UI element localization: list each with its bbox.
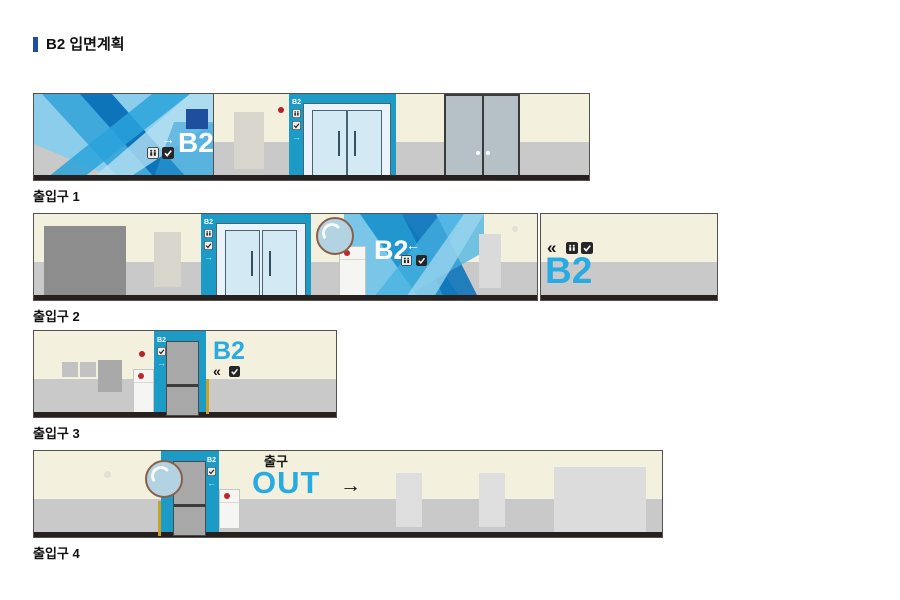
cabinet-divider <box>220 502 239 503</box>
transfer-check-icon <box>207 467 216 476</box>
kick-plate <box>158 501 161 536</box>
elevator-doors <box>303 103 391 179</box>
floor-baseline <box>541 295 717 300</box>
elevation-entrance-3: B2 → B2 « <box>33 330 337 418</box>
caption-entrance-1: 출입구 1 <box>33 186 80 205</box>
b2-wall-sign: B2 <box>213 339 245 364</box>
recessed-door <box>154 232 181 287</box>
pillar-sign-arrow: ← <box>207 479 216 488</box>
transfer-check-icon <box>204 241 213 250</box>
ceiling-fixture <box>104 471 111 478</box>
convex-mirror <box>316 217 354 255</box>
elevator-door-left <box>312 110 347 176</box>
elevator-door-left <box>225 230 260 296</box>
elevator-icon <box>147 147 159 159</box>
ceiling-fixture <box>512 226 518 232</box>
elevator-icon <box>292 109 301 118</box>
transfer-check-icon <box>229 366 240 377</box>
alarm-light <box>278 107 284 113</box>
caption-entrance-4: 출입구 4 <box>33 543 80 562</box>
pillar-sign-label: B2 <box>204 219 213 226</box>
pillar-sign-label: B2 <box>157 337 166 344</box>
elevation-entrance-2-return-wall: « B2 <box>540 213 718 301</box>
caption-entrance-2: 출입구 2 <box>33 306 80 325</box>
elevator-icon <box>401 255 412 266</box>
fire-extinguisher-cabinet <box>339 246 366 297</box>
exit-out-sign: OUT <box>252 467 320 498</box>
wall-pilaster <box>396 473 422 527</box>
pillar-sign-label: B2 <box>207 457 216 464</box>
door-pillar-sign: B2 ← <box>205 457 218 488</box>
b2-wall-sign: B2 <box>178 129 214 157</box>
elevator-door-right <box>262 230 297 296</box>
transfer-check-icon <box>157 347 166 356</box>
door-push-bar <box>174 504 205 507</box>
convex-mirror <box>145 460 183 498</box>
caption-entrance-3: 출입구 3 <box>33 423 80 442</box>
direction-arrow: → <box>161 132 175 146</box>
pillar-sign-label: B2 <box>292 99 301 106</box>
door-center-joint <box>482 96 484 175</box>
pillar-sign-arrow: → <box>157 359 166 368</box>
recessed-door <box>234 112 264 169</box>
elevation-entrance-1: → B2 B2 → <box>33 93 590 181</box>
b2-wall-sign: B2 <box>545 252 592 289</box>
pillar-sign-arrow: → <box>204 253 213 262</box>
utility-box <box>554 467 646 534</box>
floor-baseline <box>34 295 537 300</box>
door-knob <box>476 151 480 155</box>
cabinet-divider <box>340 259 365 260</box>
elevator-pillar-sign: B2 → <box>290 99 303 142</box>
floor-baseline <box>34 532 662 537</box>
alarm-light <box>224 493 230 499</box>
recessed-door <box>479 234 501 288</box>
double-swing-doors <box>444 94 520 177</box>
direction-arrow: → <box>340 475 361 496</box>
chevron-left-icon: « <box>213 364 221 378</box>
wall-box <box>98 360 122 392</box>
floor-baseline <box>34 175 589 180</box>
alarm-light <box>139 351 145 357</box>
wall-box <box>62 362 78 377</box>
elevator-doors <box>216 223 306 299</box>
elevator-pillar-sign: B2 → <box>202 219 215 262</box>
utility-box <box>44 226 126 297</box>
transfer-check-icon <box>162 147 174 159</box>
elevation-entrance-2-main: B2 → B2 ← <box>33 213 538 301</box>
transfer-check-icon <box>292 121 301 130</box>
alarm-light <box>138 373 144 379</box>
page-title: B2 입면계획 <box>46 33 125 54</box>
wall-box <box>80 362 96 377</box>
title-accent-bar <box>33 37 38 52</box>
elevator-door-right <box>347 110 382 176</box>
elevator-icon <box>204 229 213 238</box>
direction-arrow: ← <box>406 238 420 252</box>
transfer-check-icon <box>416 255 427 266</box>
door-push-bar <box>167 384 198 387</box>
pillar-sign-arrow: → <box>292 133 301 142</box>
fire-extinguisher-cabinet <box>219 489 240 529</box>
wall-pilaster <box>479 473 505 527</box>
door-knob <box>486 151 490 155</box>
service-door <box>166 341 199 416</box>
fire-extinguisher-cabinet <box>133 369 154 414</box>
cabinet-divider <box>134 382 153 383</box>
elevation-entrance-4: B2 ← 출구 OUT → <box>33 450 663 538</box>
navy-sign-panel <box>186 109 208 129</box>
kick-plate <box>206 379 209 414</box>
